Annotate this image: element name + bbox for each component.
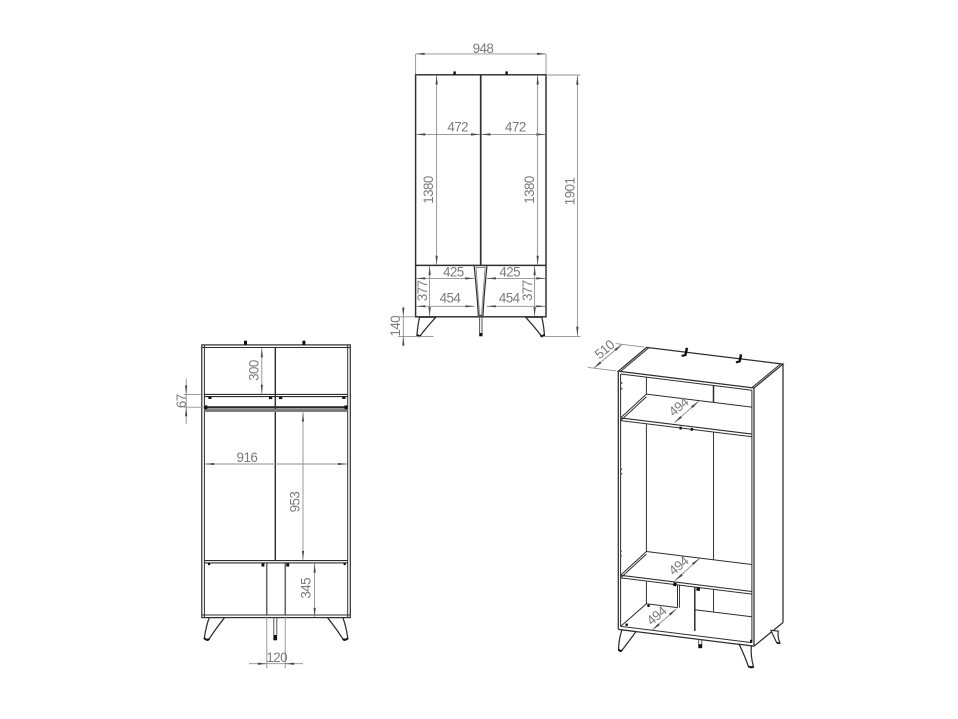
svg-text:454: 454 xyxy=(499,290,521,305)
svg-text:377: 377 xyxy=(415,280,430,301)
svg-text:345: 345 xyxy=(299,578,314,599)
svg-text:377: 377 xyxy=(520,280,535,301)
svg-text:472: 472 xyxy=(505,120,526,135)
svg-text:454: 454 xyxy=(440,290,462,305)
svg-text:494: 494 xyxy=(666,394,692,419)
svg-text:67: 67 xyxy=(174,394,189,408)
svg-text:140: 140 xyxy=(388,316,403,337)
svg-text:948: 948 xyxy=(473,41,494,56)
svg-text:1901: 1901 xyxy=(562,178,577,206)
svg-text:472: 472 xyxy=(447,120,468,135)
svg-text:1380: 1380 xyxy=(421,176,436,204)
svg-text:300: 300 xyxy=(247,360,262,381)
svg-text:425: 425 xyxy=(443,265,464,280)
svg-text:916: 916 xyxy=(237,450,258,465)
svg-text:953: 953 xyxy=(288,492,303,513)
svg-text:120: 120 xyxy=(266,650,287,665)
svg-text:510: 510 xyxy=(592,337,618,362)
svg-text:1380: 1380 xyxy=(522,176,537,204)
svg-text:425: 425 xyxy=(499,265,520,280)
